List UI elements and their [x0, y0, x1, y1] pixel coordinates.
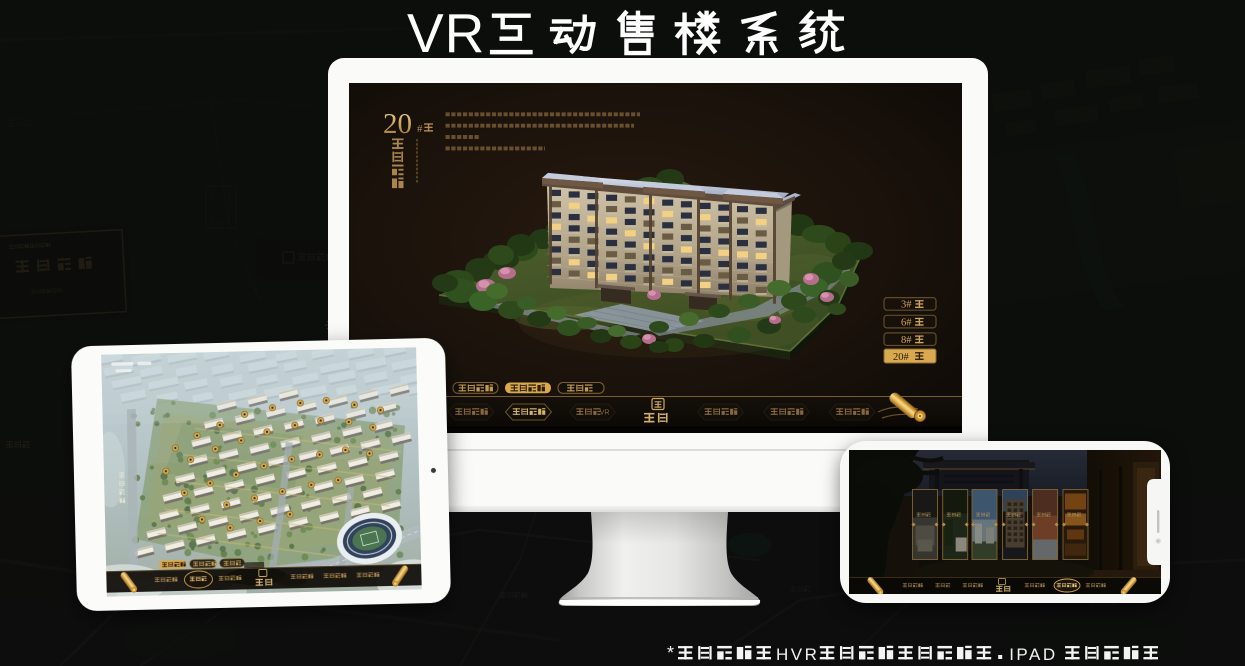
svg-text:8#: 8#	[901, 335, 912, 346]
svg-text:HVR: HVR	[776, 645, 819, 664]
svg-text:VR: VR	[407, 4, 485, 60]
svg-text:#: #	[417, 123, 423, 135]
svg-text:6#: 6#	[901, 317, 912, 328]
svg-text:20#: 20#	[893, 352, 910, 363]
svg-text:3#: 3#	[901, 300, 912, 311]
svg-text:*: *	[667, 643, 674, 663]
svg-text:IPAD: IPAD	[1009, 645, 1057, 664]
svg-text:VR: VR	[600, 410, 610, 417]
svg-text:20: 20	[383, 108, 412, 140]
